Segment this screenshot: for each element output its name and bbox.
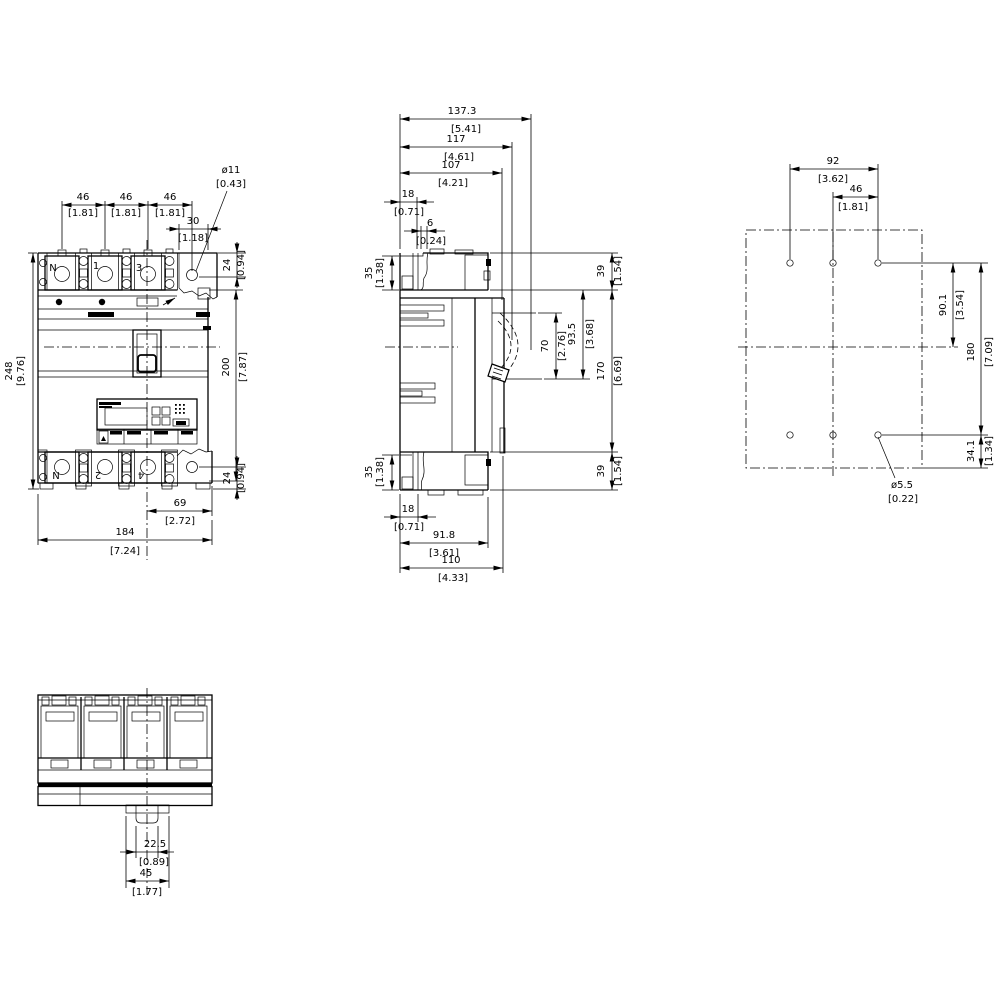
dim-35-top-in: [1.38] [375,258,386,288]
bottom-view-body [38,688,212,895]
dimension-drawing: N 1 3 [0,0,1000,1000]
dim-clip-inner-in: [0.89] [139,857,169,868]
dim-drill-dia-in: [0.22] [888,494,918,505]
dim-top-row-to-center-mm: 90.1 [938,294,949,316]
dim-center-to-edge-mm: 69 [174,498,187,509]
dim-35-bottom-mm: 35 [364,466,375,479]
front-terminal-blocks-top [45,250,198,290]
dim-depth-110-in: [4.33] [438,573,468,584]
terminal-label-top-3: 3 [136,263,142,274]
dim-overall-height-mm: 248 [4,361,15,380]
dim-top-row-to-center-in: [3.54] [955,290,966,320]
dim-rear-offset-top-in: [0.71] [394,207,424,218]
dim-overall-width-in: [7.24] [110,546,140,557]
dim-39-bottom-in: [1.54] [613,456,624,486]
dim-pole-pitch-1-mm: 46 [77,192,90,203]
dim-hole-pitch-in: [1.81] [838,202,868,213]
drill-plan-body [738,230,958,476]
dim-housing-height-in: [7.87] [238,352,249,382]
mounting-hole [787,260,793,266]
dim-39-top-in: [1.54] [613,256,624,286]
dim-hole-from-bottom-in: [0.94] [236,463,247,493]
dim-clip-outer-in: [1.77] [132,887,162,898]
bottom-view: 22.5 [0.89] 45 [1.77] [38,688,212,898]
dim-hole-span-mm: 92 [827,156,840,167]
dim-hole-pitch-mm: 46 [850,184,863,195]
dim-35-bottom-in: [1.38] [375,457,386,487]
dim-hole-span-in: [3.62] [818,174,848,185]
din-rail-clip [126,805,169,823]
dim-depth-overall-mm: 137.3 [448,106,477,117]
dim-clip-outer-mm: 45 [140,868,153,879]
dim-39-bottom-mm: 39 [596,465,607,478]
dim-hole-from-top-in: [0.94] [236,250,247,280]
toggle-handle-side [488,364,509,382]
dim-overall-height-in: [9.76] [16,356,27,386]
nameplate-left [88,312,114,317]
mounting-dot-left [56,299,62,305]
dim-rear-offset-top-mm: 18 [402,189,415,200]
mounting-hole [787,432,793,438]
side-view-dimensions: 137.3 [5.41] 117 [4.61] 107 [4.21] 18 [0… [364,106,624,584]
front-view-body: N 1 3 [38,240,220,560]
dim-body-height-in: [6.69] [613,356,624,386]
mounting-hole [875,260,881,266]
terminal-label-bottom-n: N [52,469,59,480]
dim-pole-pitch-2-mm: 46 [120,192,133,203]
dim-39-top-mm: 39 [596,265,607,278]
dim-rear-offset-bottom-mm: 18 [402,504,415,515]
terminal-label-bottom-2: 2 [95,469,101,480]
dim-hole-from-top-mm: 24 [222,259,233,272]
dim-step-mm: 6 [427,218,433,229]
dim-base-depth-mm: 91.8 [433,530,455,541]
dim-pole-pitch-1-in: [1.81] [68,208,98,219]
dim-row-spacing-in: [7.09] [984,337,995,367]
dim-hole-dia-in: [0.43] [216,179,246,190]
dim-bottom-offset-in: [1.34] [984,436,995,466]
side-view-body [385,249,542,495]
dim-pole-pitch-3-in: [1.81] [155,208,185,219]
dim-depth-107-mm: 107 [441,160,460,171]
front-screw-columns-top [38,249,178,290]
pole-module-3 [127,696,164,768]
dim-35-top-mm: 35 [364,267,375,280]
dim-escutcheon-in: [3.68] [585,319,596,349]
dim-center-to-edge-in: [2.72] [165,516,195,527]
dim-depth-107-in: [4.21] [438,178,468,189]
terminal-label-bottom-4: 4 [138,469,144,480]
dim-pole-pitch-3-mm: 46 [164,192,177,203]
dim-row-spacing-mm: 180 [966,342,977,361]
dim-overall-width-mm: 184 [115,527,134,538]
warning-triangle-icon [101,436,106,441]
dim-pole-pitch-2-in: [1.81] [111,208,141,219]
dim-hole-from-bottom-mm: 24 [222,472,233,485]
dim-bottom-offset-mm: 34.1 [966,440,977,462]
dim-hole-to-edge-mm: 30 [187,216,200,227]
drill-plan: 92 [3.62] 46 [1.81] 90.1 [3.54] 180 [7.0… [738,156,995,505]
dimension-drawing-page: N 1 3 [0,0,1000,1000]
pole-module-1 [41,696,78,768]
pole-module-2 [84,696,121,768]
dim-handle-window-mm: 70 [540,340,551,353]
terminal-label-top-n: N [49,263,56,274]
dim-escutcheon-mm: 93.5 [567,323,578,345]
terminal-label-top-1: 1 [93,261,99,272]
front-view: N 1 3 [4,165,249,560]
mounting-dot-right [99,299,105,305]
dim-drill-dia-mm: ø5.5 [891,480,913,491]
front-view-dimensions: 46 46 46 [1.81] [1.81] [1.81] ø11 [0.43]… [4,165,249,557]
dim-hole-dia-mm: ø11 [222,165,241,176]
drill-plan-dimensions: 92 [3.62] 46 [1.81] 90.1 [3.54] 180 [7.0… [790,156,995,505]
dim-depth-110-mm: 110 [441,555,460,566]
dim-hole-to-edge-in: [1.18] [178,233,208,244]
dim-housing-height-mm: 200 [221,357,232,376]
dim-depth-117-mm: 117 [446,134,465,145]
dim-rear-offset-bottom-in: [0.71] [394,522,424,533]
dim-clip-inner-mm: 22.5 [144,839,166,850]
pole-module-4 [170,696,207,768]
nameplate-right [196,312,210,317]
dim-step-in: [0.24] [416,236,446,247]
dim-body-height-mm: 170 [596,361,607,380]
side-view: 137.3 [5.41] 117 [4.61] 107 [4.21] 18 [0… [364,106,624,584]
